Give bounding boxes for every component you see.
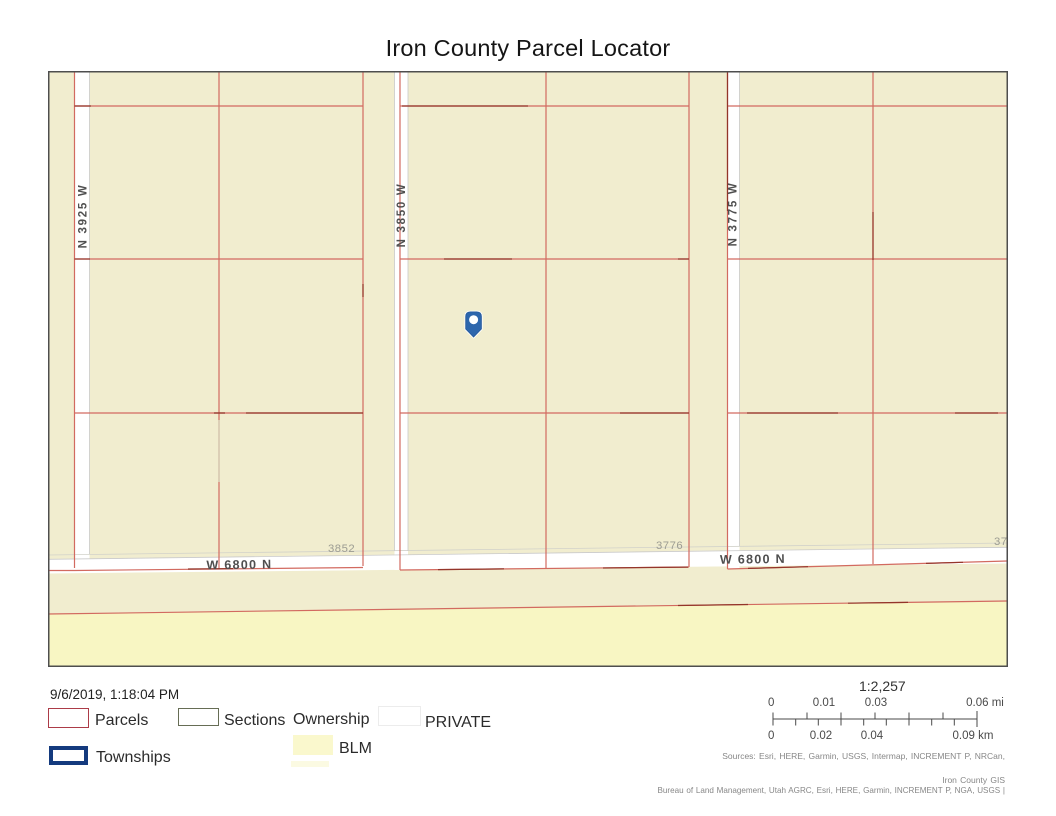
svg-text:3852: 3852 [328, 543, 355, 555]
svg-text:0.04: 0.04 [861, 730, 884, 742]
svg-text:0.09 km: 0.09 km [953, 730, 994, 742]
svg-text:N 3925 W: N 3925 W [78, 184, 90, 249]
svg-text:0.02: 0.02 [810, 730, 832, 742]
svg-text:W 6800 N: W 6800 N [720, 552, 786, 567]
svg-text:0.03: 0.03 [865, 697, 887, 709]
svg-text:0.06 mi: 0.06 mi [966, 697, 1004, 709]
svg-text:0: 0 [768, 697, 774, 709]
svg-text:W 6800 N: W 6800 N [206, 557, 272, 572]
svg-text:N 3775 W: N 3775 W [728, 182, 740, 247]
svg-text:3776: 3776 [656, 540, 683, 552]
svg-text:0.01: 0.01 [813, 697, 835, 709]
svg-text:0: 0 [768, 730, 774, 742]
svg-text:3776: 3776 [994, 536, 1008, 548]
svg-text:N 3850 W: N 3850 W [396, 183, 408, 248]
